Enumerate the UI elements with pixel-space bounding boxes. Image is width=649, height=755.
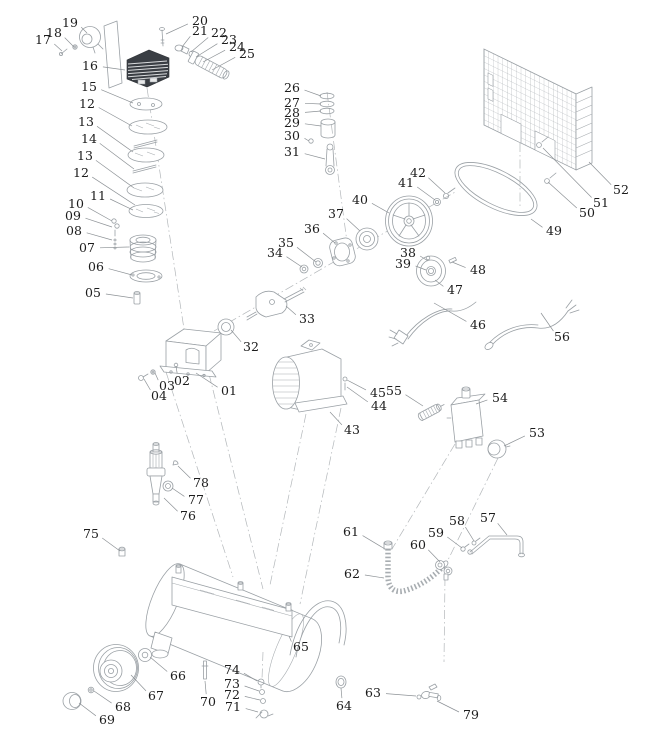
leader-line bbox=[110, 199, 133, 210]
leader-line bbox=[99, 108, 132, 127]
leader-line bbox=[101, 90, 133, 103]
part-callout-30: 30 bbox=[284, 128, 309, 143]
part-number-label: 61 bbox=[343, 524, 359, 539]
leader-line bbox=[365, 575, 384, 578]
part-callout-05: 05 bbox=[85, 285, 133, 300]
leader-line bbox=[286, 306, 296, 315]
leader-line bbox=[86, 218, 113, 227]
leader-line bbox=[97, 126, 133, 152]
part-number-label: 43 bbox=[344, 422, 360, 437]
leader-line bbox=[323, 233, 335, 243]
head-bolt bbox=[160, 28, 165, 47]
leader-line bbox=[504, 436, 525, 446]
part-number-label: 58 bbox=[449, 513, 465, 528]
part-number-label: 18 bbox=[46, 25, 62, 40]
part-callout-68: 68 bbox=[94, 691, 131, 714]
leader-line bbox=[434, 303, 466, 321]
leader-line bbox=[465, 527, 474, 541]
part-callout-26: 26 bbox=[284, 80, 321, 96]
part-number-label: 60 bbox=[410, 537, 426, 552]
part-number-label: 31 bbox=[284, 144, 300, 159]
leader-line bbox=[65, 38, 74, 47]
part-callout-43: 43 bbox=[330, 412, 360, 437]
part-callout-69: 69 bbox=[79, 703, 115, 727]
part-number-label: 74 bbox=[224, 662, 240, 677]
part-number-label: 75 bbox=[83, 526, 99, 541]
motor bbox=[272, 340, 347, 412]
leader-line bbox=[100, 247, 129, 248]
part-number-label: 78 bbox=[193, 475, 209, 490]
part-number-label: 57 bbox=[480, 510, 496, 525]
part-number-label: 04 bbox=[151, 388, 167, 403]
part-number-label: 40 bbox=[352, 192, 368, 207]
leader-line bbox=[305, 124, 321, 126]
leader-line bbox=[172, 488, 184, 496]
part-number-label: 76 bbox=[180, 508, 196, 523]
part-callout-46: 46 bbox=[434, 303, 486, 332]
leader-line bbox=[155, 373, 158, 380]
part-number-label: 13 bbox=[78, 114, 94, 129]
part-number-label: 55 bbox=[386, 383, 402, 398]
part-number-label: 42 bbox=[410, 165, 426, 180]
part-number-label: 59 bbox=[428, 525, 444, 540]
power-cord bbox=[389, 302, 476, 346]
part-number-label: 02 bbox=[174, 373, 190, 388]
part-callout-33: 33 bbox=[286, 306, 315, 326]
part-number-label: 07 bbox=[79, 240, 95, 255]
outlet-pipe bbox=[468, 536, 525, 557]
check-valve bbox=[417, 401, 446, 421]
part-number-label: 15 bbox=[81, 79, 97, 94]
part-number-label: 19 bbox=[62, 15, 78, 30]
part-callout-53: 53 bbox=[504, 425, 545, 446]
leader-line bbox=[164, 498, 178, 511]
regulator bbox=[147, 443, 178, 506]
part-number-label: 67 bbox=[148, 688, 164, 703]
part-number-label: 39 bbox=[395, 256, 411, 271]
valve-plate-stack bbox=[127, 98, 167, 218]
part-callout-01: 01 bbox=[196, 373, 237, 398]
part-number-label: 10 bbox=[68, 196, 84, 211]
leader-line bbox=[589, 162, 611, 185]
part-callout-62: 62 bbox=[344, 566, 384, 581]
part-callout-55: 55 bbox=[386, 383, 423, 406]
leader-line bbox=[428, 550, 440, 562]
part-callout-66: 66 bbox=[150, 657, 186, 683]
part-number-label: 66 bbox=[170, 668, 186, 683]
part-callout-64: 64 bbox=[336, 688, 352, 713]
part-callout-45: 45 bbox=[347, 380, 386, 400]
mounting-plate bbox=[172, 565, 292, 637]
part-number-label: 48 bbox=[470, 262, 486, 277]
part-callout-40: 40 bbox=[352, 192, 389, 213]
leader-line bbox=[428, 178, 445, 193]
rubber-foot bbox=[336, 676, 346, 688]
part-number-label: 69 bbox=[99, 712, 115, 727]
leader-line bbox=[341, 688, 342, 698]
leader-line bbox=[106, 294, 133, 298]
part-callout-63: 63 bbox=[365, 685, 416, 700]
leader-line bbox=[94, 691, 112, 703]
part-number-label: 56 bbox=[554, 329, 570, 344]
part-number-label: 06 bbox=[88, 259, 104, 274]
part-callout-75: 75 bbox=[83, 526, 120, 551]
part-number-label: 36 bbox=[304, 221, 320, 236]
part-callout-73: 73 bbox=[224, 676, 259, 691]
part-number-label: 12 bbox=[73, 165, 89, 180]
leader-line bbox=[79, 703, 96, 716]
part-number-label: 70 bbox=[200, 694, 216, 709]
base-gasket bbox=[130, 270, 162, 282]
leader-line bbox=[205, 681, 206, 694]
leader-line bbox=[109, 269, 132, 275]
part-callout-58: 58 bbox=[449, 513, 474, 541]
leader-line bbox=[102, 538, 120, 551]
flywheel bbox=[386, 196, 433, 246]
part-number-label: 05 bbox=[85, 285, 101, 300]
part-number-label: 53 bbox=[529, 425, 545, 440]
cylinder-bolts bbox=[112, 219, 119, 249]
part-number-label: 52 bbox=[613, 182, 629, 197]
leader-line bbox=[244, 673, 257, 681]
belt-guard-grille bbox=[484, 49, 592, 170]
part-number-label: 01 bbox=[221, 383, 237, 398]
leader-line bbox=[347, 380, 366, 390]
leader-line bbox=[347, 219, 360, 231]
wheel bbox=[94, 645, 139, 692]
hose-fitting bbox=[436, 561, 453, 581]
wheel-bolt bbox=[88, 687, 94, 693]
leader-line bbox=[305, 138, 310, 141]
drain-cock bbox=[417, 684, 441, 701]
leader-line bbox=[196, 44, 217, 57]
bearing-front bbox=[218, 319, 234, 335]
cylinder-head bbox=[127, 50, 169, 87]
part-number-label: 21 bbox=[192, 23, 208, 38]
leader-line bbox=[305, 103, 321, 104]
dowel-pin bbox=[134, 292, 140, 305]
part-number-label: 54 bbox=[492, 390, 508, 405]
part-callout-59: 59 bbox=[428, 525, 462, 548]
leader-line bbox=[150, 657, 167, 672]
leader-line bbox=[305, 90, 322, 96]
part-number-label: 35 bbox=[278, 235, 294, 250]
leader-line bbox=[305, 154, 325, 159]
part-callout-06: 06 bbox=[88, 259, 132, 275]
part-number-label: 13 bbox=[77, 148, 93, 163]
part-number-label: 46 bbox=[470, 317, 486, 332]
leader-line bbox=[103, 67, 125, 70]
part-number-label: 51 bbox=[593, 195, 609, 210]
leader-line bbox=[245, 696, 260, 700]
leader-line bbox=[498, 523, 507, 535]
part-number-label: 16 bbox=[82, 58, 98, 73]
part-number-label: 32 bbox=[243, 339, 259, 354]
leader-line bbox=[305, 111, 321, 112]
part-number-label: 45 bbox=[370, 385, 386, 400]
pressure-switch bbox=[447, 387, 485, 448]
leader-line bbox=[54, 44, 62, 51]
leader-line bbox=[203, 50, 225, 62]
part-number-label: 30 bbox=[284, 128, 300, 143]
leader-line bbox=[245, 686, 259, 691]
part-number-label: 14 bbox=[81, 131, 97, 146]
part-number-label: 12 bbox=[79, 96, 95, 111]
part-number-label: 64 bbox=[336, 698, 352, 713]
leader-line bbox=[417, 187, 435, 200]
part-callout-77: 77 bbox=[172, 488, 204, 507]
part-number-label: 63 bbox=[365, 685, 381, 700]
leader-line bbox=[548, 182, 577, 208]
part-number-label: 37 bbox=[328, 206, 344, 221]
part-callout-35: 35 bbox=[278, 235, 316, 262]
part-number-label: 77 bbox=[188, 492, 204, 507]
plate-screw bbox=[119, 547, 125, 556]
part-callout-49: 49 bbox=[531, 219, 562, 238]
part-callout-08: 08 bbox=[66, 223, 112, 240]
crank-nut bbox=[314, 259, 323, 268]
part-number-label: 08 bbox=[66, 223, 82, 238]
part-number-label: 26 bbox=[284, 80, 300, 95]
pulley bbox=[417, 256, 446, 286]
leader-line bbox=[191, 38, 208, 53]
part-number-label: 11 bbox=[90, 188, 106, 203]
part-callout-32: 32 bbox=[231, 330, 259, 354]
leader-line bbox=[531, 219, 543, 227]
part-callout-31: 31 bbox=[284, 144, 325, 159]
wheel-washer bbox=[139, 649, 152, 662]
part-callout-21: 21 bbox=[182, 23, 208, 47]
part-number-label: 73 bbox=[224, 676, 240, 691]
crankshaft bbox=[247, 287, 306, 320]
leader-line bbox=[87, 233, 112, 240]
leader-line bbox=[166, 24, 188, 34]
part-number-label: 47 bbox=[447, 282, 463, 297]
part-callout-07: 07 bbox=[79, 240, 129, 255]
part-callout-42: 42 bbox=[410, 165, 445, 193]
part-callout-36: 36 bbox=[304, 221, 335, 243]
page: { "figure": { "description": "Air compre… bbox=[0, 0, 649, 755]
part-callout-48: 48 bbox=[452, 262, 486, 277]
part-callout-78: 78 bbox=[178, 466, 209, 490]
part-callout-16: 16 bbox=[82, 58, 125, 73]
motor-bolt bbox=[343, 377, 347, 390]
leader-line bbox=[246, 709, 258, 712]
part-number-label: 49 bbox=[546, 223, 562, 238]
leader-line bbox=[452, 262, 466, 268]
part-number-label: 79 bbox=[463, 707, 479, 722]
leader-line bbox=[297, 247, 316, 262]
delivery-tube bbox=[188, 51, 231, 82]
leader-line bbox=[372, 203, 389, 213]
part-number-label: 44 bbox=[371, 398, 387, 413]
leader-line bbox=[88, 207, 112, 221]
part-number-label: 62 bbox=[344, 566, 360, 581]
leader-line bbox=[182, 36, 190, 47]
part-callout-60: 60 bbox=[410, 537, 440, 562]
part-callout-61: 61 bbox=[343, 524, 385, 549]
piston-assembly bbox=[309, 93, 335, 174]
pressure-gauge bbox=[488, 440, 510, 458]
part-callout-52: 52 bbox=[589, 162, 629, 197]
exploded-parts-diagram: 0102030405060708091011121314131215161718… bbox=[0, 0, 649, 755]
drive-belt bbox=[447, 152, 544, 227]
air-filter bbox=[59, 21, 122, 88]
hub-cap bbox=[63, 693, 81, 710]
part-callout-57: 57 bbox=[480, 510, 507, 535]
part-callout-56: 56 bbox=[541, 313, 570, 344]
part-number-label: 68 bbox=[115, 699, 131, 714]
leader-line bbox=[437, 701, 459, 712]
leader-line bbox=[447, 537, 462, 548]
axle bbox=[202, 661, 208, 679]
drain-parts bbox=[256, 679, 273, 718]
leader-line bbox=[363, 536, 385, 549]
leader-line bbox=[178, 466, 191, 478]
leader-line bbox=[144, 379, 150, 390]
part-callout-79: 79 bbox=[437, 701, 479, 722]
cylinder bbox=[130, 235, 156, 262]
part-callout-70: 70 bbox=[200, 681, 216, 709]
part-number-label: 33 bbox=[299, 311, 315, 326]
part-number-label: 25 bbox=[239, 46, 255, 61]
leader-line bbox=[231, 330, 241, 342]
leader-line bbox=[386, 694, 416, 696]
part-callout-50: 50 bbox=[548, 182, 595, 220]
leader-line bbox=[406, 395, 424, 406]
bearing-rear bbox=[356, 228, 378, 250]
leader-line bbox=[287, 257, 303, 267]
part-number-label: 65 bbox=[293, 639, 309, 654]
